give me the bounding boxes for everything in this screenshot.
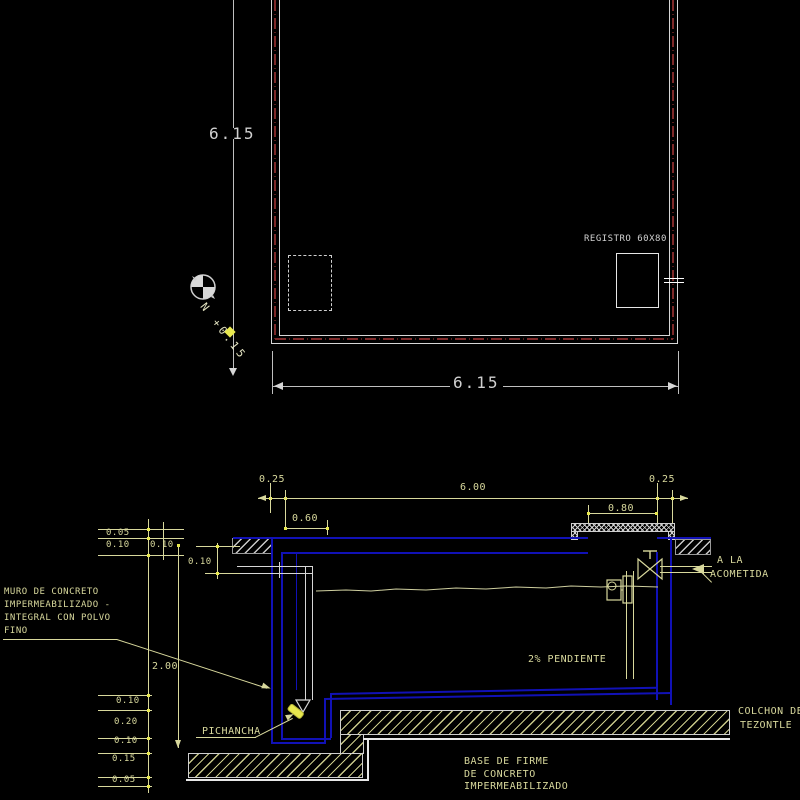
sec-inlet-pipe-top <box>237 566 313 567</box>
plan-wall-right-inner <box>669 0 670 336</box>
plan-dim-line-left <box>233 0 234 374</box>
sec-slab-top-left <box>233 537 588 539</box>
muro-leader-h <box>3 639 117 640</box>
tick-dot <box>147 554 150 557</box>
pichancha-leader-h <box>196 737 256 738</box>
sec-pit-floor-inner <box>281 738 331 740</box>
sec-ground-line-right <box>363 738 730 740</box>
sec-dim-base-a: 0.15 <box>112 754 136 765</box>
tick-dot <box>216 545 219 548</box>
tick-dot <box>326 527 329 530</box>
plan-dim-bottom-label: 6.15 <box>450 377 503 388</box>
plan-centerline-right <box>672 0 674 340</box>
muro-label-2: IMPERMEABILIZADO - <box>4 600 111 611</box>
plan-dim-left-arrow <box>229 368 237 376</box>
sec-dim-ext1 <box>270 483 271 513</box>
cad-drawing-cistern: REGISTRO 60X80 6.15 6.15 N +0.15 <box>0 0 800 800</box>
plan-wall-left-outer <box>271 0 272 344</box>
north-level-label: +0.15 <box>210 317 248 362</box>
valve-icon <box>635 549 665 583</box>
plan-dashed-pad <box>288 255 332 311</box>
base-label-1: BASE DE FIRME <box>464 756 549 767</box>
muro-leader-diag <box>117 639 268 689</box>
tick-dot <box>216 572 219 575</box>
sec-wall-left-outer <box>271 537 273 743</box>
muro-label-3: INTEGRAL CON POLVO <box>4 613 111 624</box>
tick-dot <box>587 512 590 515</box>
sec-floor-step-outer <box>324 698 326 742</box>
sec-dim-depth-arrow <box>175 740 181 748</box>
sec-dim-top-arrow-right <box>680 495 688 501</box>
plan-wall-bottom-outer <box>271 343 678 344</box>
sec-base-step <box>340 734 364 754</box>
plan-pipe-tick-bottom <box>664 282 684 283</box>
sec-ground-line-left <box>186 779 369 781</box>
base-label-2: DE CONCRETO <box>464 769 536 780</box>
plan-dim-ext-right <box>678 351 679 394</box>
tick-dot <box>177 544 180 547</box>
sec-dim-inset: 0.60 <box>292 513 318 524</box>
sec-drop-pipe-left <box>305 566 306 700</box>
sec-colchon-band <box>340 710 730 735</box>
tick-dot <box>284 527 287 530</box>
tick-dot <box>147 528 150 531</box>
sec-dim-floor-b: 0.20 <box>114 717 138 728</box>
tick-row <box>98 786 152 787</box>
tick-dot <box>147 709 150 712</box>
plan-dim-side-label: 6.15 <box>206 128 259 139</box>
muro-label-1: MURO DE CONCRETO <box>4 587 99 598</box>
tick-row <box>205 573 240 574</box>
plan-centerline-left <box>274 0 276 340</box>
tick-dot <box>655 512 658 515</box>
colchon-label-1: COLCHON DE <box>738 706 800 717</box>
sec-dim-floor-c: 0.10 <box>114 736 138 747</box>
plan-wall-left-inner <box>279 0 280 336</box>
sec-inlet-pipe-bottom <box>237 573 313 574</box>
sec-dim-top-arrow-left <box>258 495 266 501</box>
sec-dim-slab-c: 0.10 <box>150 540 174 551</box>
sec-dim-base-b: 0.05 <box>112 775 136 786</box>
sec-dim-ext3 <box>657 483 658 523</box>
tick-row <box>98 555 184 556</box>
sec-floor-step-inner <box>330 693 332 738</box>
plan-dim-bottom-arrow-right <box>668 382 677 390</box>
sec-dim-top-left: 0.25 <box>259 474 285 485</box>
sec-dim-top-right: 0.25 <box>649 474 675 485</box>
plan-registro-label: REGISTRO 60X80 <box>584 234 667 245</box>
tick-dot <box>147 694 150 697</box>
sec-ground-block-right <box>675 539 711 555</box>
sec-pipe-union-tick <box>279 562 280 578</box>
sec-dim-ext4 <box>672 490 673 523</box>
plan-dim-ext-left <box>272 351 273 394</box>
sec-dim-floor-a: 0.10 <box>116 696 140 707</box>
tick-dot <box>147 776 150 779</box>
plan-pipe-tick-top <box>664 278 684 279</box>
muro-label-4: FINO <box>4 626 28 637</box>
sec-dim-inset-line <box>285 528 327 529</box>
plan-wall-right-outer <box>677 0 678 344</box>
sec-wall-left-ledge <box>296 554 297 690</box>
acometida-label-2: ACOMETIDA <box>710 569 769 580</box>
tick-dot <box>147 737 150 740</box>
pendiente-label: 2% PENDIENTE <box>528 654 606 665</box>
tick-row <box>98 710 152 711</box>
float-valve-icon <box>605 574 637 606</box>
sec-slab-bottom <box>283 552 588 554</box>
colchon-label-2: TEZONTLE <box>740 720 792 731</box>
sec-dim-opening: 0.80 <box>608 503 634 514</box>
sec-acometida-pipe-bottom <box>660 572 712 573</box>
sec-registro-cover <box>571 523 675 532</box>
pichancha-valve-icon <box>282 697 322 727</box>
plan-wall-bottom-inner <box>279 335 670 336</box>
sec-acometida-pipe-top <box>660 566 712 567</box>
plan-dim-bottom-arrow-left <box>274 382 283 390</box>
sec-pit-floor-outer <box>271 742 326 744</box>
plan-registro-box <box>616 253 659 308</box>
sec-base-band-left <box>188 753 363 778</box>
sec-dim-top-line <box>258 498 688 499</box>
tick-dot <box>147 785 150 788</box>
sec-wall-right-outer <box>670 537 672 705</box>
tick-dot <box>147 752 150 755</box>
sec-dim-depth-vline <box>178 545 179 748</box>
plan-centerline-bottom <box>275 338 673 340</box>
sec-dim-top-span: 6.00 <box>460 482 486 493</box>
sec-dim-slab-b: 0.10 <box>106 540 130 551</box>
sec-dim-slab-a: 0.05 <box>106 528 130 539</box>
sec-dim-ext2 <box>285 490 286 530</box>
acometida-label-1: A LA <box>717 555 743 566</box>
base-label-3: IMPERMEABILIZADO <box>464 781 568 792</box>
sec-dim-inlet-drop: 0.10 <box>188 557 212 568</box>
sec-dim-depth: 2.00 <box>152 661 178 672</box>
pichancha-label: PICHANCHA <box>202 726 261 737</box>
sec-drop-pipe-right <box>312 566 313 700</box>
sec-ground-step <box>367 738 369 780</box>
sec-slab-top-right <box>657 537 711 539</box>
